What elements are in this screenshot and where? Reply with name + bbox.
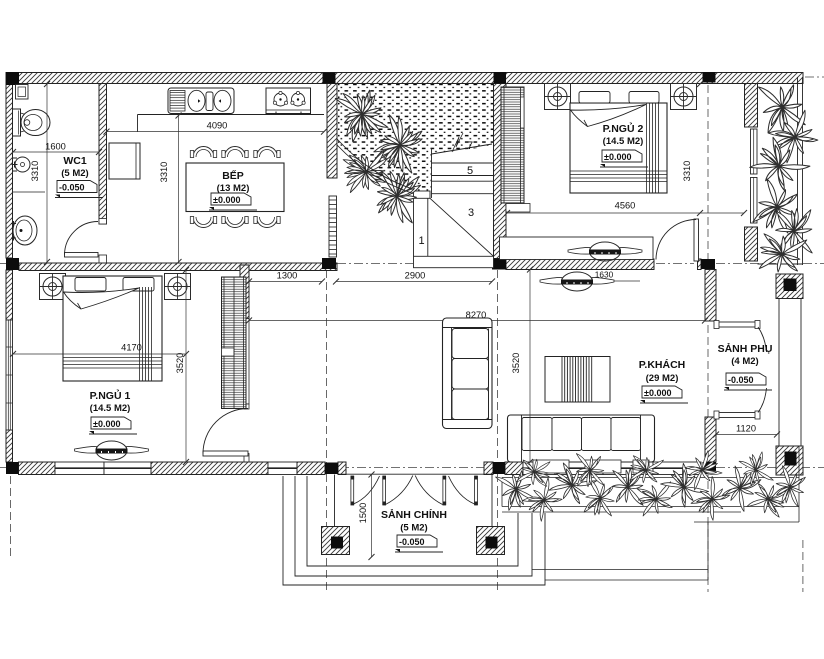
svg-text:7: 7 xyxy=(467,140,473,152)
svg-text:±0.000: ±0.000 xyxy=(93,419,120,429)
svg-text:(13 M2): (13 M2) xyxy=(217,183,250,194)
svg-text:WC1: WC1 xyxy=(63,155,86,167)
svg-text:-0.050: -0.050 xyxy=(728,375,754,385)
svg-text:1300: 1300 xyxy=(277,271,298,281)
svg-text:2900: 2900 xyxy=(405,271,426,281)
svg-text:BẾP: BẾP xyxy=(222,169,244,182)
svg-text:3310: 3310 xyxy=(30,161,40,182)
svg-text:(5 M2): (5 M2) xyxy=(400,523,427,534)
svg-text:3520: 3520 xyxy=(511,353,521,374)
svg-text:3: 3 xyxy=(468,207,474,219)
svg-text:(14.5 M2): (14.5 M2) xyxy=(603,136,644,147)
svg-text:SẢNH CHÍNH: SẢNH CHÍNH xyxy=(381,508,447,521)
svg-text:4170: 4170 xyxy=(121,343,142,353)
svg-text:4090: 4090 xyxy=(207,121,228,131)
svg-text:P.NGỦ 1: P.NGỦ 1 xyxy=(90,389,131,402)
svg-text:(5 M2): (5 M2) xyxy=(61,168,88,179)
svg-text:±0.000: ±0.000 xyxy=(213,195,240,205)
svg-text:±0.000: ±0.000 xyxy=(604,152,631,162)
svg-text:1600: 1600 xyxy=(45,142,66,152)
svg-text:3310: 3310 xyxy=(159,162,169,183)
svg-text:P.KHÁCH: P.KHÁCH xyxy=(639,358,685,371)
svg-text:3310: 3310 xyxy=(682,161,692,182)
svg-text:1500: 1500 xyxy=(358,503,368,524)
svg-text:5: 5 xyxy=(467,165,473,177)
svg-text:4560: 4560 xyxy=(615,201,636,211)
svg-text:1120: 1120 xyxy=(736,424,756,434)
svg-text:1: 1 xyxy=(418,235,424,247)
svg-text:-0.050: -0.050 xyxy=(59,183,85,193)
svg-text:-0.050: -0.050 xyxy=(399,537,425,547)
svg-text:±0.000: ±0.000 xyxy=(644,388,671,398)
svg-text:(29 M2): (29 M2) xyxy=(646,373,679,384)
svg-text:(4 M2): (4 M2) xyxy=(731,356,758,367)
svg-text:(14.5 M2): (14.5 M2) xyxy=(90,403,131,414)
svg-text:3520: 3520 xyxy=(175,353,185,374)
svg-text:P.NGỦ 2: P.NGỦ 2 xyxy=(603,122,644,135)
svg-text:SẢNH PHỤ: SẢNH PHỤ xyxy=(718,342,773,355)
